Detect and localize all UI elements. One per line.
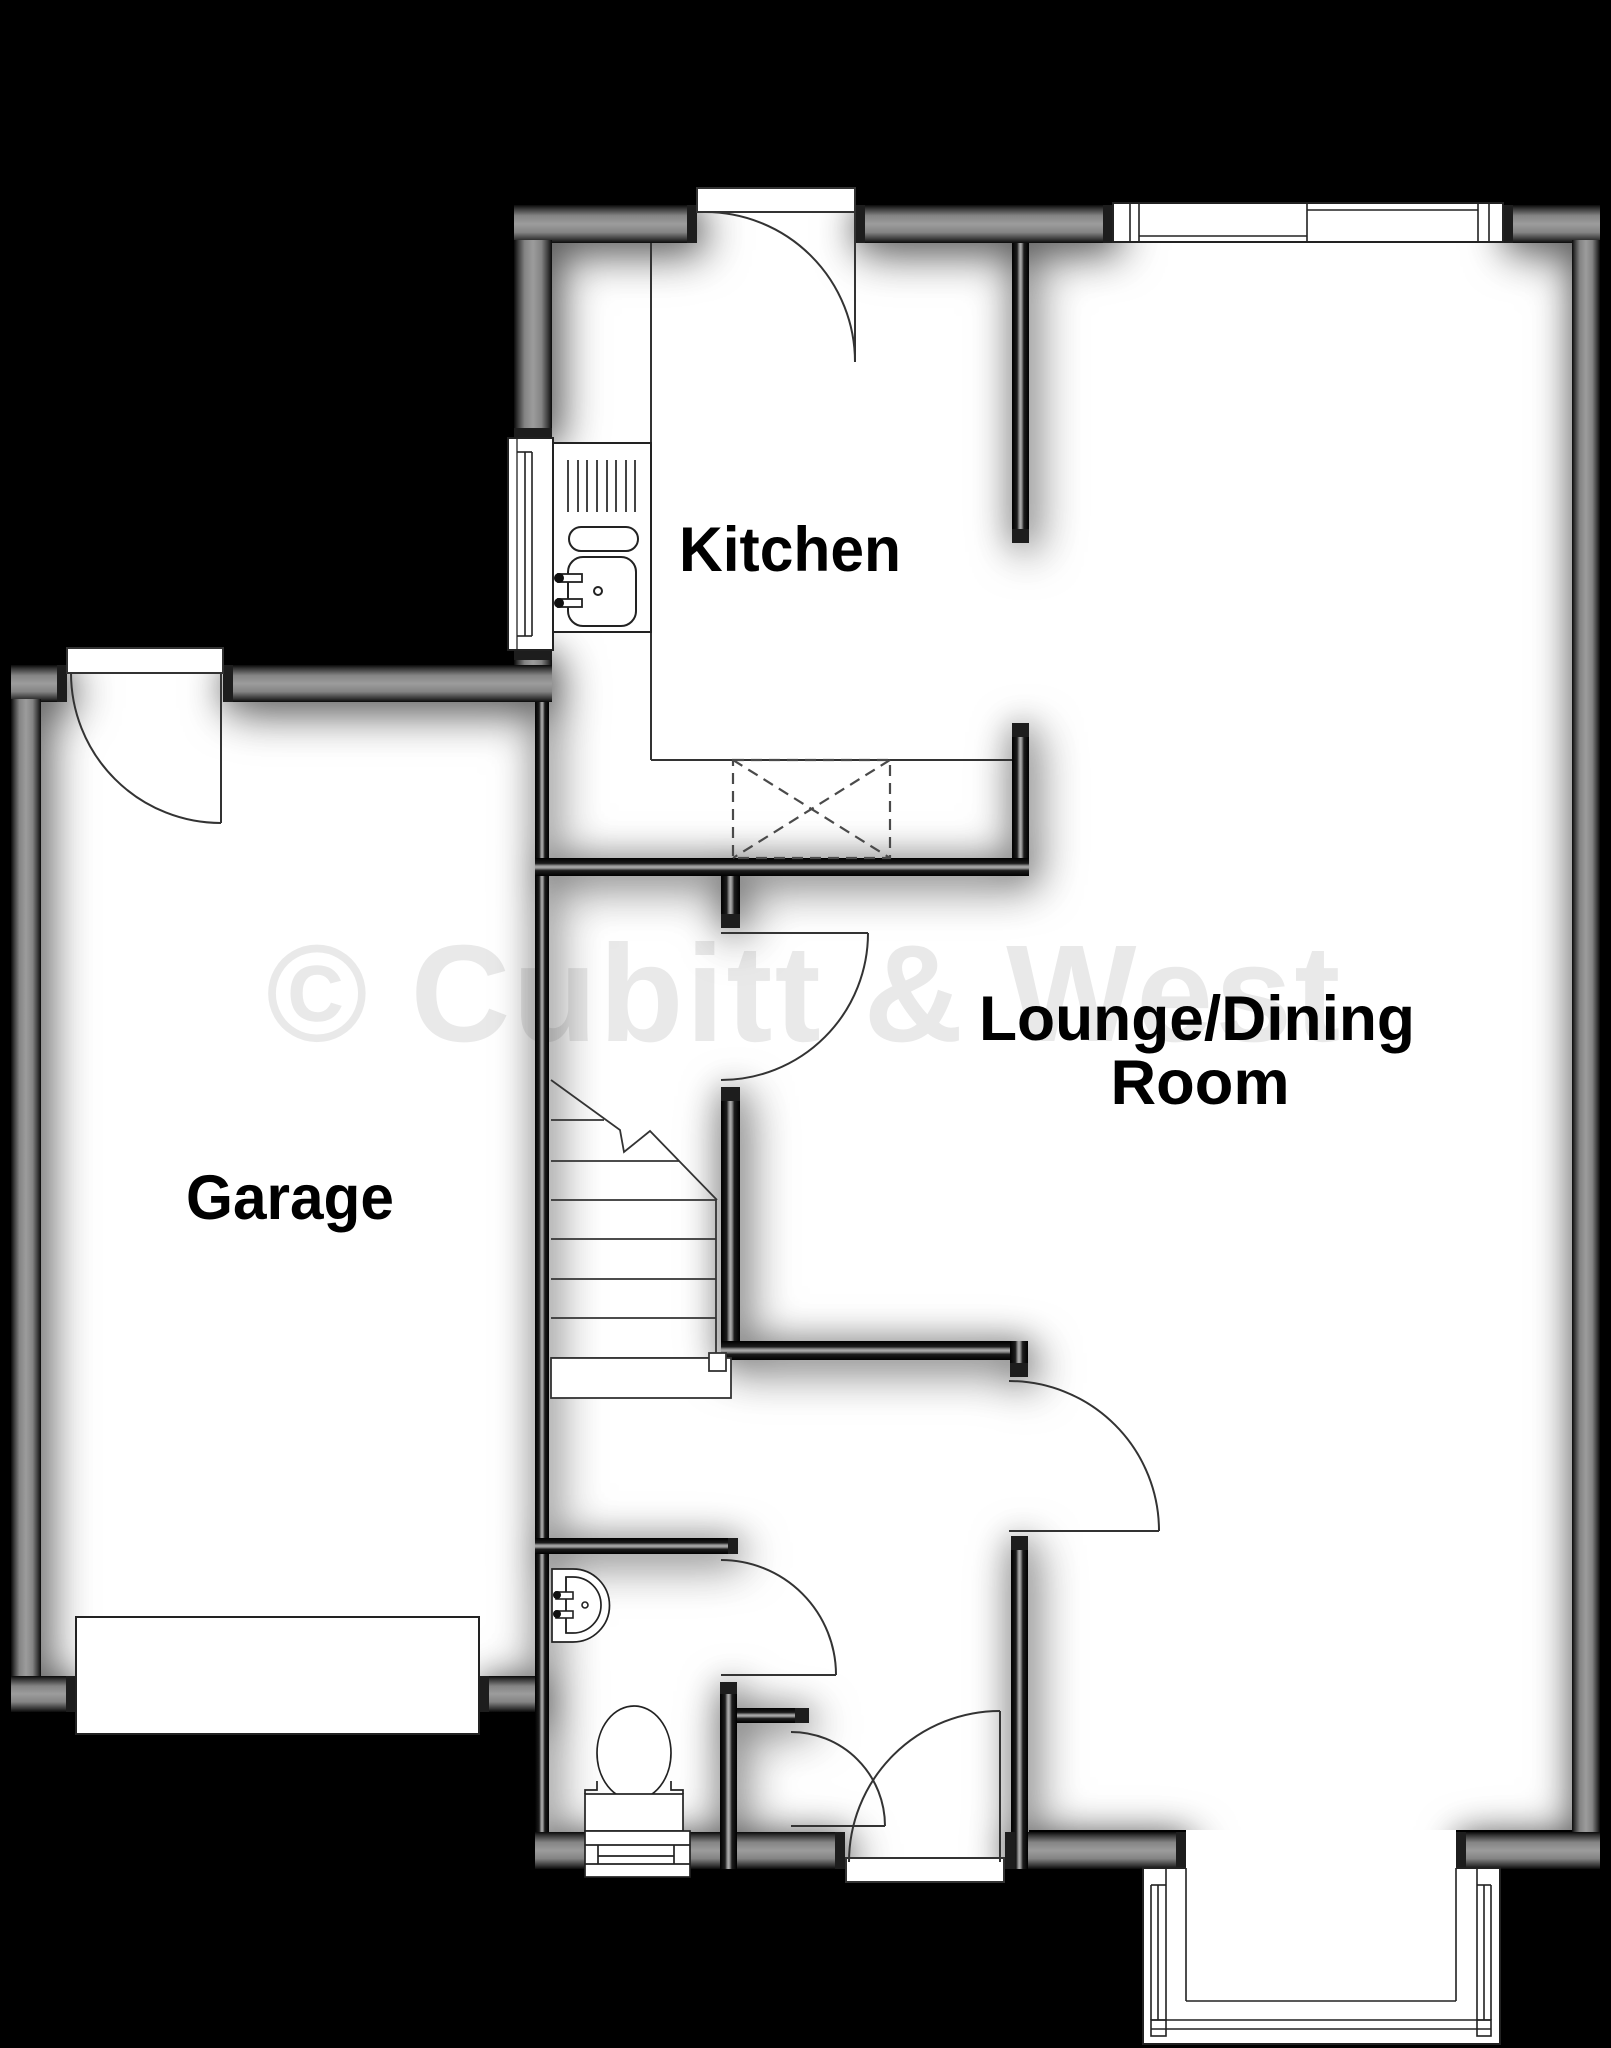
svg-text:Lounge/Dining: Lounge/Dining [979,984,1415,1054]
svg-text:Garage: Garage [186,1163,394,1233]
svg-text:Room: Room [1111,1048,1290,1118]
svg-text:Kitchen: Kitchen [679,515,901,585]
